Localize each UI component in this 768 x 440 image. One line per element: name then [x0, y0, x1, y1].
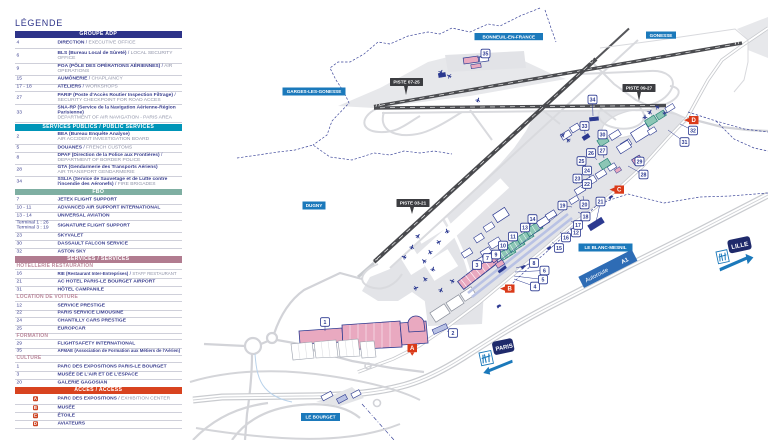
svg-text:22: 22	[584, 182, 590, 188]
svg-text:34: 34	[590, 97, 596, 103]
svg-text:8: 8	[533, 261, 536, 267]
svg-text:23: 23	[575, 176, 581, 182]
svg-text:16: 16	[563, 235, 569, 241]
svg-text:17: 17	[575, 223, 581, 229]
svg-text:5: 5	[542, 277, 545, 283]
svg-text:2: 2	[452, 331, 455, 337]
svg-text:21: 21	[598, 199, 604, 205]
svg-text:25: 25	[579, 159, 585, 165]
svg-text:24: 24	[584, 168, 590, 174]
svg-text:35: 35	[483, 51, 489, 57]
svg-text:18: 18	[583, 214, 589, 220]
svg-text:1: 1	[324, 320, 327, 326]
svg-text:PISTE 03-21: PISTE 03-21	[400, 201, 427, 206]
svg-text:GONESSE: GONESSE	[650, 33, 673, 38]
svg-text:PISTE 07-25: PISTE 07-25	[393, 80, 420, 85]
svg-text:D: D	[692, 118, 697, 124]
svg-text:BONNEUIL-EN-FRANCE: BONNEUIL-EN-FRANCE	[483, 34, 536, 39]
svg-text:31: 31	[682, 140, 688, 146]
svg-text:LE BLANC-MESNIL: LE BLANC-MESNIL	[584, 245, 626, 250]
svg-text:DUGNY: DUGNY	[306, 203, 323, 208]
svg-text:27: 27	[600, 148, 606, 154]
svg-text:9: 9	[495, 252, 498, 258]
svg-text:20: 20	[582, 202, 588, 208]
svg-text:10: 10	[500, 243, 506, 249]
svg-text:19: 19	[560, 203, 566, 209]
svg-text:6: 6	[543, 268, 546, 274]
svg-text:14: 14	[530, 217, 536, 223]
svg-text:32: 32	[690, 128, 696, 134]
svg-text:30: 30	[600, 132, 606, 138]
svg-text:33: 33	[582, 124, 588, 130]
svg-text:28: 28	[641, 172, 647, 178]
svg-text:12: 12	[573, 230, 579, 236]
svg-text:26: 26	[588, 151, 594, 157]
svg-text:GARGES-LES-GONESSE: GARGES-LES-GONESSE	[287, 89, 342, 94]
svg-text:PISTE 09-27: PISTE 09-27	[626, 86, 653, 91]
svg-text:3: 3	[476, 263, 479, 269]
svg-text:C: C	[617, 188, 622, 194]
svg-text:13: 13	[522, 225, 528, 231]
svg-text:15: 15	[556, 246, 562, 252]
svg-text:29: 29	[637, 159, 643, 165]
svg-text:7: 7	[486, 256, 489, 262]
svg-text:B: B	[508, 287, 513, 293]
svg-text:4: 4	[534, 284, 537, 290]
svg-text:11: 11	[510, 234, 516, 240]
svg-text:LE BOURGET: LE BOURGET	[305, 415, 335, 420]
svg-text:A: A	[410, 346, 415, 352]
